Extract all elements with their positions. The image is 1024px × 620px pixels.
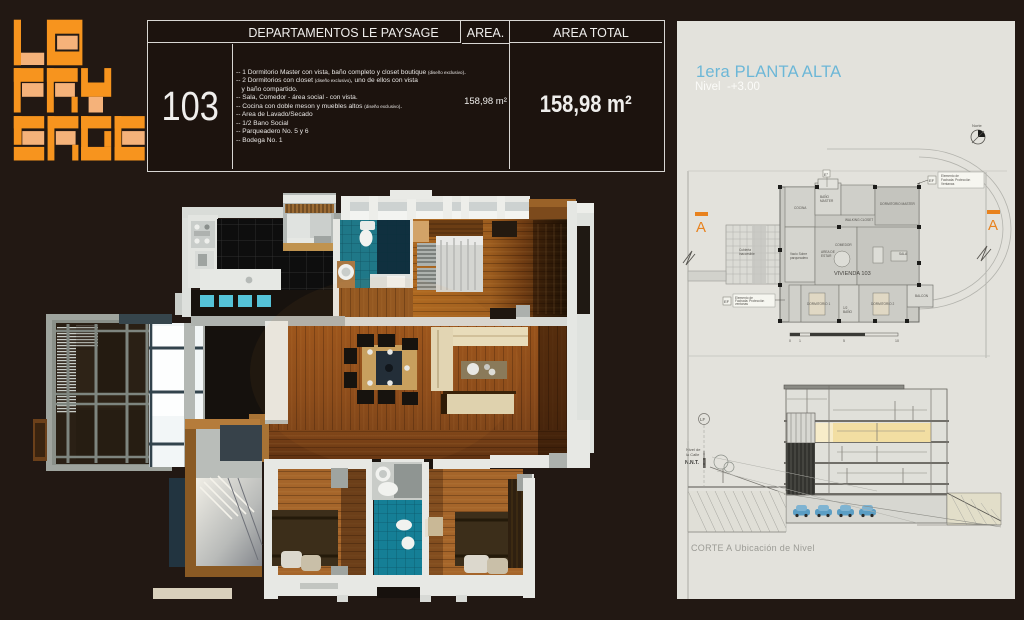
svg-text:Norte: Norte — [972, 123, 983, 128]
svg-text:MASTER: MASTER — [820, 199, 834, 203]
svg-text:10: 10 — [895, 339, 899, 343]
svg-text:ventanas: ventanas — [735, 302, 748, 306]
svg-text:EF: EF — [929, 178, 935, 183]
svg-text:A: A — [988, 217, 998, 234]
svg-text:DORMITORIO MASTER: DORMITORIO MASTER — [880, 202, 916, 206]
svg-text:ESTAR: ESTAR — [821, 254, 832, 258]
svg-text:DORMITORIO 2: DORMITORIO 2 — [871, 302, 895, 306]
svg-text:EF: EF — [724, 299, 730, 304]
svg-text:BAÑO: BAÑO — [843, 309, 853, 314]
svg-text:LF: LF — [700, 417, 706, 422]
svg-text:1: 1 — [799, 339, 801, 343]
svg-text:BALCON: BALCON — [915, 294, 929, 298]
svg-text:VIVIENDA 103: VIVIENDA 103 — [834, 271, 871, 277]
svg-text:inaccesible: inaccesible — [739, 252, 755, 256]
svg-text:N.N.T.: N.N.T. — [685, 460, 700, 466]
svg-text:COMEDOR: COMEDOR — [835, 243, 852, 247]
svg-text:E°: E° — [824, 172, 829, 177]
svg-text:SALA: SALA — [899, 252, 908, 256]
svg-text:COCINA: COCINA — [794, 206, 807, 210]
svg-text:parqueadero: parqueadero — [790, 256, 808, 260]
svg-text:Ventanas: Ventanas — [941, 182, 955, 186]
svg-text:5: 5 — [843, 339, 845, 343]
svg-text:0: 0 — [789, 339, 791, 343]
svg-text:A: A — [696, 219, 706, 236]
svg-text:DORMITORIO 1: DORMITORIO 1 — [807, 302, 831, 306]
svg-text:WALKING CLOSET: WALKING CLOSET — [845, 218, 873, 222]
